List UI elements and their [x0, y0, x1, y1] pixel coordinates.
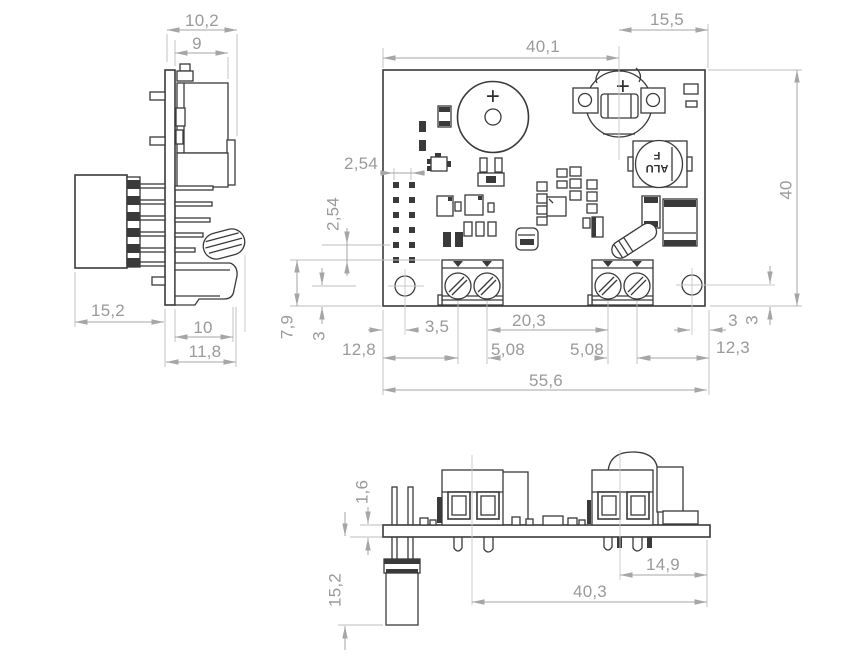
dim-label-connector-length: 15,2 — [91, 301, 125, 320]
buzzer: + — [458, 82, 529, 153]
top-view: + + ALU F — [277, 10, 802, 395]
solder-tails — [454, 537, 652, 552]
pcb-front — [383, 525, 710, 537]
buzzer-polarity-mark: + — [486, 83, 500, 110]
terminal-screw — [474, 273, 500, 299]
smd-pad — [684, 84, 698, 94]
smd-side — [176, 108, 185, 126]
terminal-block-left-front — [437, 470, 503, 525]
dim-label-14-9: 14,9 — [646, 555, 680, 574]
dim-label-3-5: 3,5 — [425, 317, 449, 336]
dim-label-3-left: 3 — [309, 331, 328, 341]
dim-label-40-1: 40,1 — [526, 37, 560, 56]
dim-label-12-3: 12,3 — [716, 338, 750, 357]
connector-housing — [75, 175, 140, 268]
dim-label-1-6: 1,6 — [352, 480, 371, 504]
dim-label-5-08-left: 5,08 — [491, 340, 525, 359]
inductor-side — [177, 153, 228, 187]
through-pin — [150, 92, 165, 100]
terminal-screw — [624, 273, 650, 299]
connector-pins — [140, 184, 165, 266]
top-stub — [180, 64, 190, 71]
pcb-edge — [165, 70, 175, 305]
top-component-side — [177, 71, 193, 81]
dim-label-15-2-front: 15,2 — [325, 573, 344, 607]
terminal-screw — [445, 273, 471, 299]
dim-label-40-3: 40,3 — [573, 582, 607, 601]
dim-label-40: 40 — [776, 180, 795, 199]
dim-label-20-3: 20,3 — [512, 311, 546, 330]
dim-label-pitch-h: 2,54 — [344, 154, 378, 173]
inductor-front — [663, 511, 698, 524]
dc-jack — [663, 199, 697, 246]
terminal-screw — [595, 273, 621, 299]
through-pin — [152, 277, 165, 285]
dim-label-55-6: 55,6 — [529, 371, 563, 390]
terminal-block-right — [588, 260, 653, 305]
probe-pin — [392, 487, 397, 560]
dc-jack-front — [657, 467, 683, 512]
dim-label-3-right: 3 — [728, 311, 738, 330]
probe-housing — [384, 559, 420, 625]
dim-label-3-right-v: 3 — [742, 315, 761, 325]
inductor-marking-alu: ALU — [646, 162, 669, 174]
pcb-dimension-drawing: 10,2 9 15,2 10 11,8 + — [0, 0, 863, 657]
dim-label-pitch-v: 2,54 — [323, 197, 342, 231]
dim-label-overall-depth: 11,8 — [189, 342, 222, 361]
inductor-marking-f: F — [653, 149, 660, 161]
dim-label-block-depth: 10 — [193, 318, 212, 337]
smd-pad — [686, 101, 697, 107]
dim-label-block-width: 9 — [192, 34, 202, 53]
technical-drawing-page: 10,2 9 15,2 10 11,8 + — [0, 0, 863, 657]
dim-label-15-5: 15,5 — [650, 10, 684, 29]
left-side-view: 10,2 9 15,2 10 11,8 — [75, 11, 248, 367]
dim-label-overall-width: 10,2 — [185, 11, 219, 30]
dim-label-7-9: 7,9 — [277, 315, 296, 339]
crystal-side — [200, 226, 247, 262]
battery-polarity-mark: + — [616, 73, 630, 100]
terminal-bracket-side — [175, 263, 237, 305]
terminal-block-left — [438, 260, 503, 305]
probe-pin — [408, 487, 413, 560]
smd-side — [176, 130, 183, 144]
through-pin — [150, 137, 165, 145]
front-view: 1,6 15,2 14,9 40,3 — [325, 450, 710, 650]
dim-label-5-08-right: 5,08 — [570, 340, 604, 359]
dim-label-12-8: 12,8 — [342, 340, 376, 359]
